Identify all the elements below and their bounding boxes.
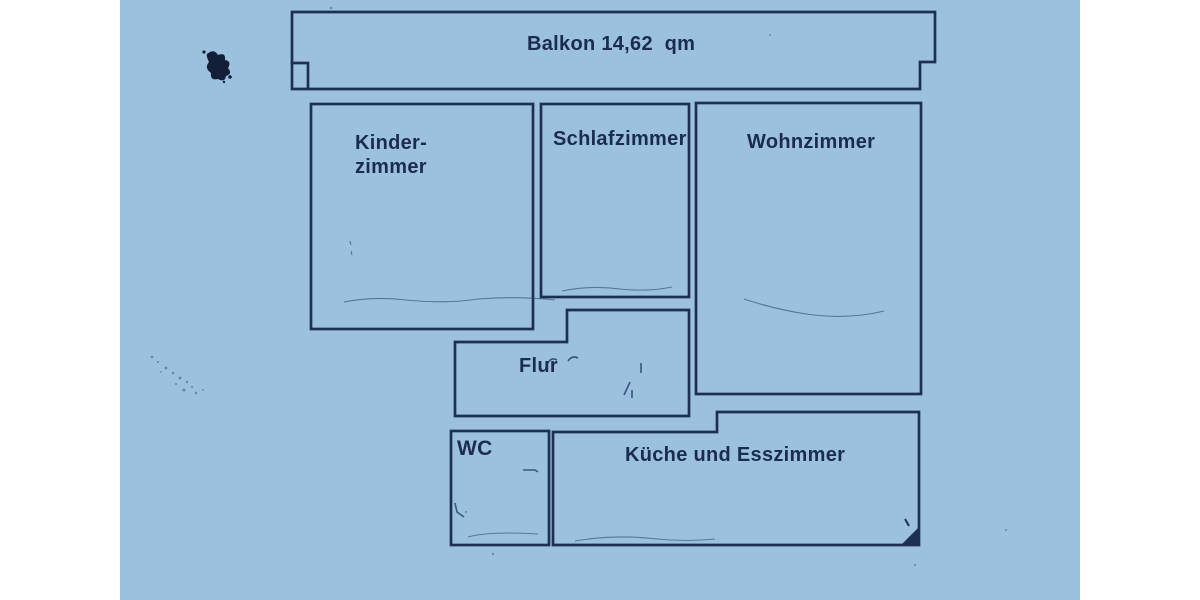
scan-squiggle-artifacts: [344, 241, 884, 541]
wohnzimmer-label: Wohnzimmer: [747, 130, 875, 154]
flur-outline: [455, 310, 689, 416]
ink-blob-artifact: [202, 50, 231, 83]
flur-label: Flur: [519, 354, 558, 378]
kinderzimmer-label: Kinder- zimmer: [355, 131, 427, 179]
kueche-outline: [553, 412, 919, 545]
speckle-trail-artifact: [151, 356, 204, 394]
floor-plan-drawing: [0, 0, 1200, 600]
schlafzimmer-label: Schlafzimmer: [553, 127, 687, 151]
stray-dots-artifacts: [330, 7, 1007, 566]
balkon-left-step: [292, 63, 308, 88]
balkon-label: Balkon 14,62 qm: [527, 32, 695, 56]
kueche-label: Küche und Esszimmer: [625, 443, 845, 467]
kueche-corner-tick: [905, 519, 909, 526]
wc-label: WC: [457, 437, 493, 461]
kueche-corner-mark: [901, 527, 919, 545]
